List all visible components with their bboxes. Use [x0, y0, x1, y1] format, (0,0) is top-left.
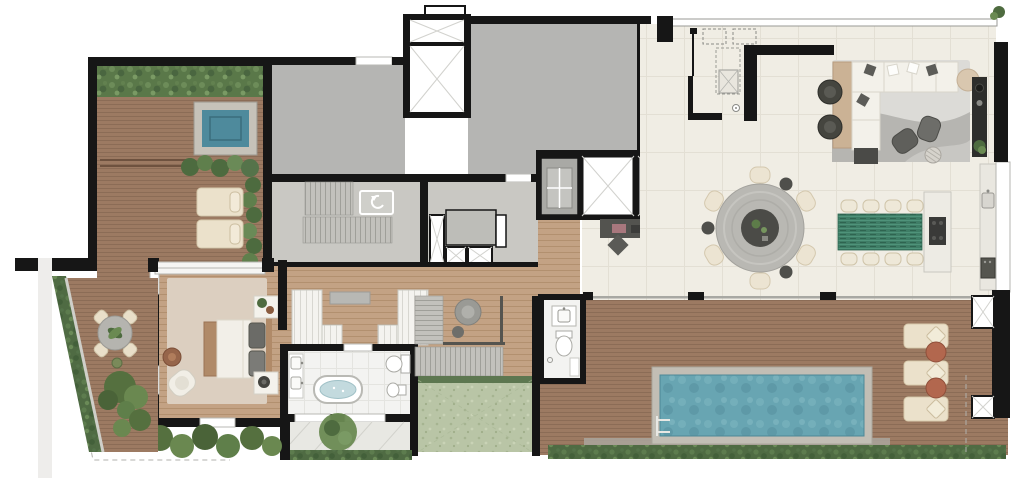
nightstand	[254, 296, 278, 318]
plant	[990, 12, 998, 20]
wall	[688, 113, 722, 120]
shaft-box	[972, 296, 994, 328]
wall	[262, 258, 274, 272]
tree	[338, 431, 352, 445]
powder-room	[538, 294, 586, 384]
nook-side-table	[452, 326, 464, 338]
stair-flight	[415, 296, 443, 344]
bed-bench	[204, 322, 217, 376]
stool	[780, 178, 793, 191]
floor-plan-svg	[0, 0, 1025, 480]
pool-lounger	[904, 397, 948, 421]
reading-chair	[455, 299, 481, 325]
deck-step-line	[100, 165, 186, 167]
glass-facade	[660, 19, 997, 26]
wall	[688, 292, 704, 300]
hedge-row	[418, 376, 532, 383]
wall	[272, 57, 356, 65]
door-opening	[506, 174, 532, 182]
stool	[702, 222, 715, 235]
sink	[558, 310, 570, 322]
wall	[994, 42, 1008, 162]
wall	[744, 45, 834, 55]
elevator	[582, 156, 634, 216]
hedge-strip	[97, 66, 265, 97]
wall-counter	[980, 164, 996, 290]
wardrobe	[378, 325, 398, 345]
tv-wall	[972, 77, 987, 157]
wall	[464, 16, 640, 24]
wall	[280, 344, 288, 422]
tree	[324, 420, 340, 436]
door-opening	[356, 57, 392, 65]
floor-plan-canvas	[0, 0, 1025, 480]
wall	[820, 292, 836, 300]
plant-pot	[112, 358, 122, 368]
wardrobe	[292, 290, 322, 345]
stool	[780, 266, 793, 279]
stair-flight	[305, 182, 353, 215]
wardrobe	[322, 325, 342, 345]
elevator-shaft	[403, 6, 471, 118]
media-device	[977, 100, 983, 106]
bidet	[387, 383, 406, 397]
side-table	[818, 80, 842, 104]
cooktop	[929, 217, 946, 245]
wall	[280, 418, 290, 460]
living-dining-room	[583, 6, 1010, 302]
sink	[291, 377, 301, 389]
wall	[263, 57, 272, 270]
bush-cluster	[147, 424, 282, 458]
sink	[291, 357, 301, 369]
speaker-icon	[976, 84, 984, 92]
stair-railing	[443, 342, 505, 345]
side-balcony	[996, 162, 1010, 292]
headboard	[266, 318, 272, 380]
plant	[978, 146, 986, 154]
glass-wall	[583, 296, 1010, 299]
double-vanity	[289, 354, 303, 398]
roof-lounger	[197, 188, 243, 216]
plant	[257, 298, 267, 308]
wall	[15, 258, 97, 271]
roof-lounger	[197, 220, 243, 248]
hedge-strip	[288, 450, 412, 460]
shelf	[570, 358, 579, 376]
hedge-strip	[548, 445, 1006, 459]
pot	[266, 306, 274, 314]
pillow	[907, 62, 919, 74]
side-table	[818, 115, 842, 139]
bathtub	[314, 376, 362, 403]
service-elevator	[541, 158, 578, 215]
oven	[981, 258, 995, 278]
wall	[88, 57, 97, 270]
deck-step-line	[100, 159, 186, 161]
centerpiece-plant	[752, 220, 761, 229]
wall	[88, 57, 272, 66]
wall	[532, 296, 540, 456]
stair-flight	[415, 347, 503, 376]
wall	[272, 174, 506, 182]
long-dining-table	[838, 214, 922, 250]
wall	[148, 258, 158, 272]
dining-chair	[750, 273, 770, 289]
ottoman	[854, 148, 878, 164]
pool-side-table	[926, 342, 946, 362]
shaft-box	[972, 396, 994, 418]
common-stairs	[272, 174, 540, 270]
stair-turn-arrow-icon	[360, 191, 393, 214]
jacuzzi	[194, 102, 257, 155]
toilet	[556, 331, 572, 356]
wall	[744, 45, 757, 121]
swimming-pool	[652, 367, 872, 444]
roof-garden-terrace	[15, 57, 272, 280]
pillow	[249, 323, 265, 348]
sink	[982, 193, 994, 208]
wall	[657, 16, 673, 42]
kitchen-island	[924, 192, 951, 272]
tableware	[762, 236, 768, 241]
dining-chair	[750, 167, 770, 183]
closet-bench	[330, 292, 370, 304]
wall	[420, 174, 428, 266]
stair-railing	[500, 296, 503, 345]
centerpiece-plant	[761, 227, 767, 233]
door-opening	[344, 344, 372, 351]
deck-floor	[540, 382, 584, 455]
toilet	[386, 355, 410, 373]
pool-side-table	[926, 378, 946, 398]
stair-flight	[303, 217, 392, 243]
nightstand	[254, 372, 278, 394]
lot-edge-band	[38, 258, 52, 478]
bedroom-side-table	[163, 348, 181, 366]
accent-table	[925, 147, 941, 163]
wall	[278, 260, 287, 330]
pillow	[887, 64, 899, 76]
pool-deck	[540, 290, 1010, 459]
